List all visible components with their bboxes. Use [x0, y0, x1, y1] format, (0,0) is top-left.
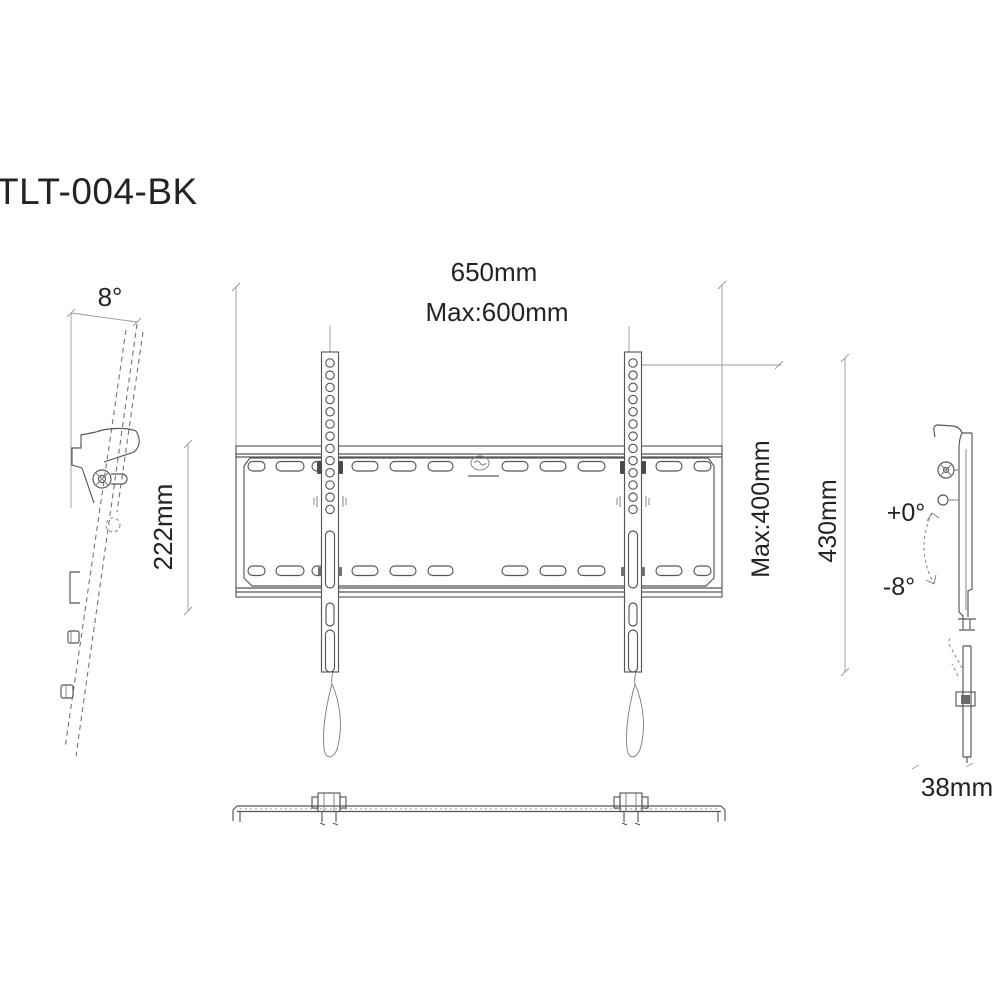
brand-logo	[468, 456, 499, 476]
bottom-bar-right-flange	[718, 806, 725, 822]
hook-arm	[96, 428, 139, 462]
tv-rail-left	[314, 352, 346, 757]
bolt-hatch	[96, 473, 108, 485]
profile-bolt-lower	[938, 495, 948, 505]
technical-drawing-page: TLT-004-BK 222mm 8°	[0, 0, 1000, 1000]
strip-clamp-lower	[61, 685, 73, 698]
tilt-arc-arrows	[926, 513, 939, 584]
model-title: TLT-004-BK	[0, 171, 198, 212]
label-drop-height: 222mm	[148, 484, 178, 571]
side-view-left: 222mm 8°	[61, 282, 192, 756]
label-tilt-max: +0°	[887, 499, 926, 527]
profile-bolt-hatch	[940, 464, 959, 476]
angle-chord-line	[71, 313, 137, 322]
profile-inner-edge	[959, 449, 963, 619]
depth-ticks	[912, 763, 973, 769]
label-overall-width: 650mm	[451, 257, 538, 287]
wall-hook-step	[72, 432, 96, 468]
rail-bolt-left-b	[339, 461, 344, 474]
hook-lower-edge	[82, 468, 94, 503]
label-profile-depth: 38mm	[921, 772, 993, 802]
lower-wall-hook	[70, 572, 80, 603]
wall-plate-outline	[236, 446, 722, 597]
rail-bolt-right-d	[642, 567, 646, 576]
tilted-bracket-edge	[117, 332, 143, 512]
tilted-tv-edge	[76, 324, 137, 756]
label-max-width: Max:600mm	[425, 297, 568, 327]
front-view: 650mm Max:600mm Max:400mm 430mm	[232, 257, 849, 757]
plate-fold-lines	[236, 454, 722, 592]
label-tilt-min: -8°	[883, 573, 915, 601]
bolt-shaft	[111, 474, 127, 484]
pull-strap-right	[627, 672, 644, 757]
pull-strap-left	[324, 672, 341, 757]
tilt-arc	[924, 513, 934, 584]
profile-outer-edge	[968, 433, 972, 617]
rail-bolt-left-c	[318, 567, 322, 576]
rail-bolt-left-a	[317, 461, 322, 474]
wall-mount-drawing: TLT-004-BK 222mm 8°	[0, 0, 1000, 1000]
rail-bolt-right-b	[642, 461, 647, 474]
label-max-height: Max:400mm	[747, 440, 775, 578]
tv-rail-right	[617, 352, 649, 757]
label-overall-height: 430mm	[814, 479, 842, 562]
label-tilt-angle: 8°	[98, 282, 123, 312]
strip-clamp-upper	[68, 631, 79, 643]
profile-lower-strip	[949, 638, 975, 763]
bottom-view	[233, 793, 725, 825]
profile-foot	[958, 619, 976, 630]
rail-bolt-right-a	[620, 461, 625, 474]
bottom-bar-left-flange	[233, 806, 240, 822]
profile-top-hook	[934, 425, 972, 449]
rail-bolt-left-d	[339, 567, 343, 576]
rail-bolt-right-c	[621, 567, 625, 576]
side-view-right: +0° -8° 38mm	[883, 425, 993, 802]
tilted-tv-edge-2	[65, 330, 126, 748]
